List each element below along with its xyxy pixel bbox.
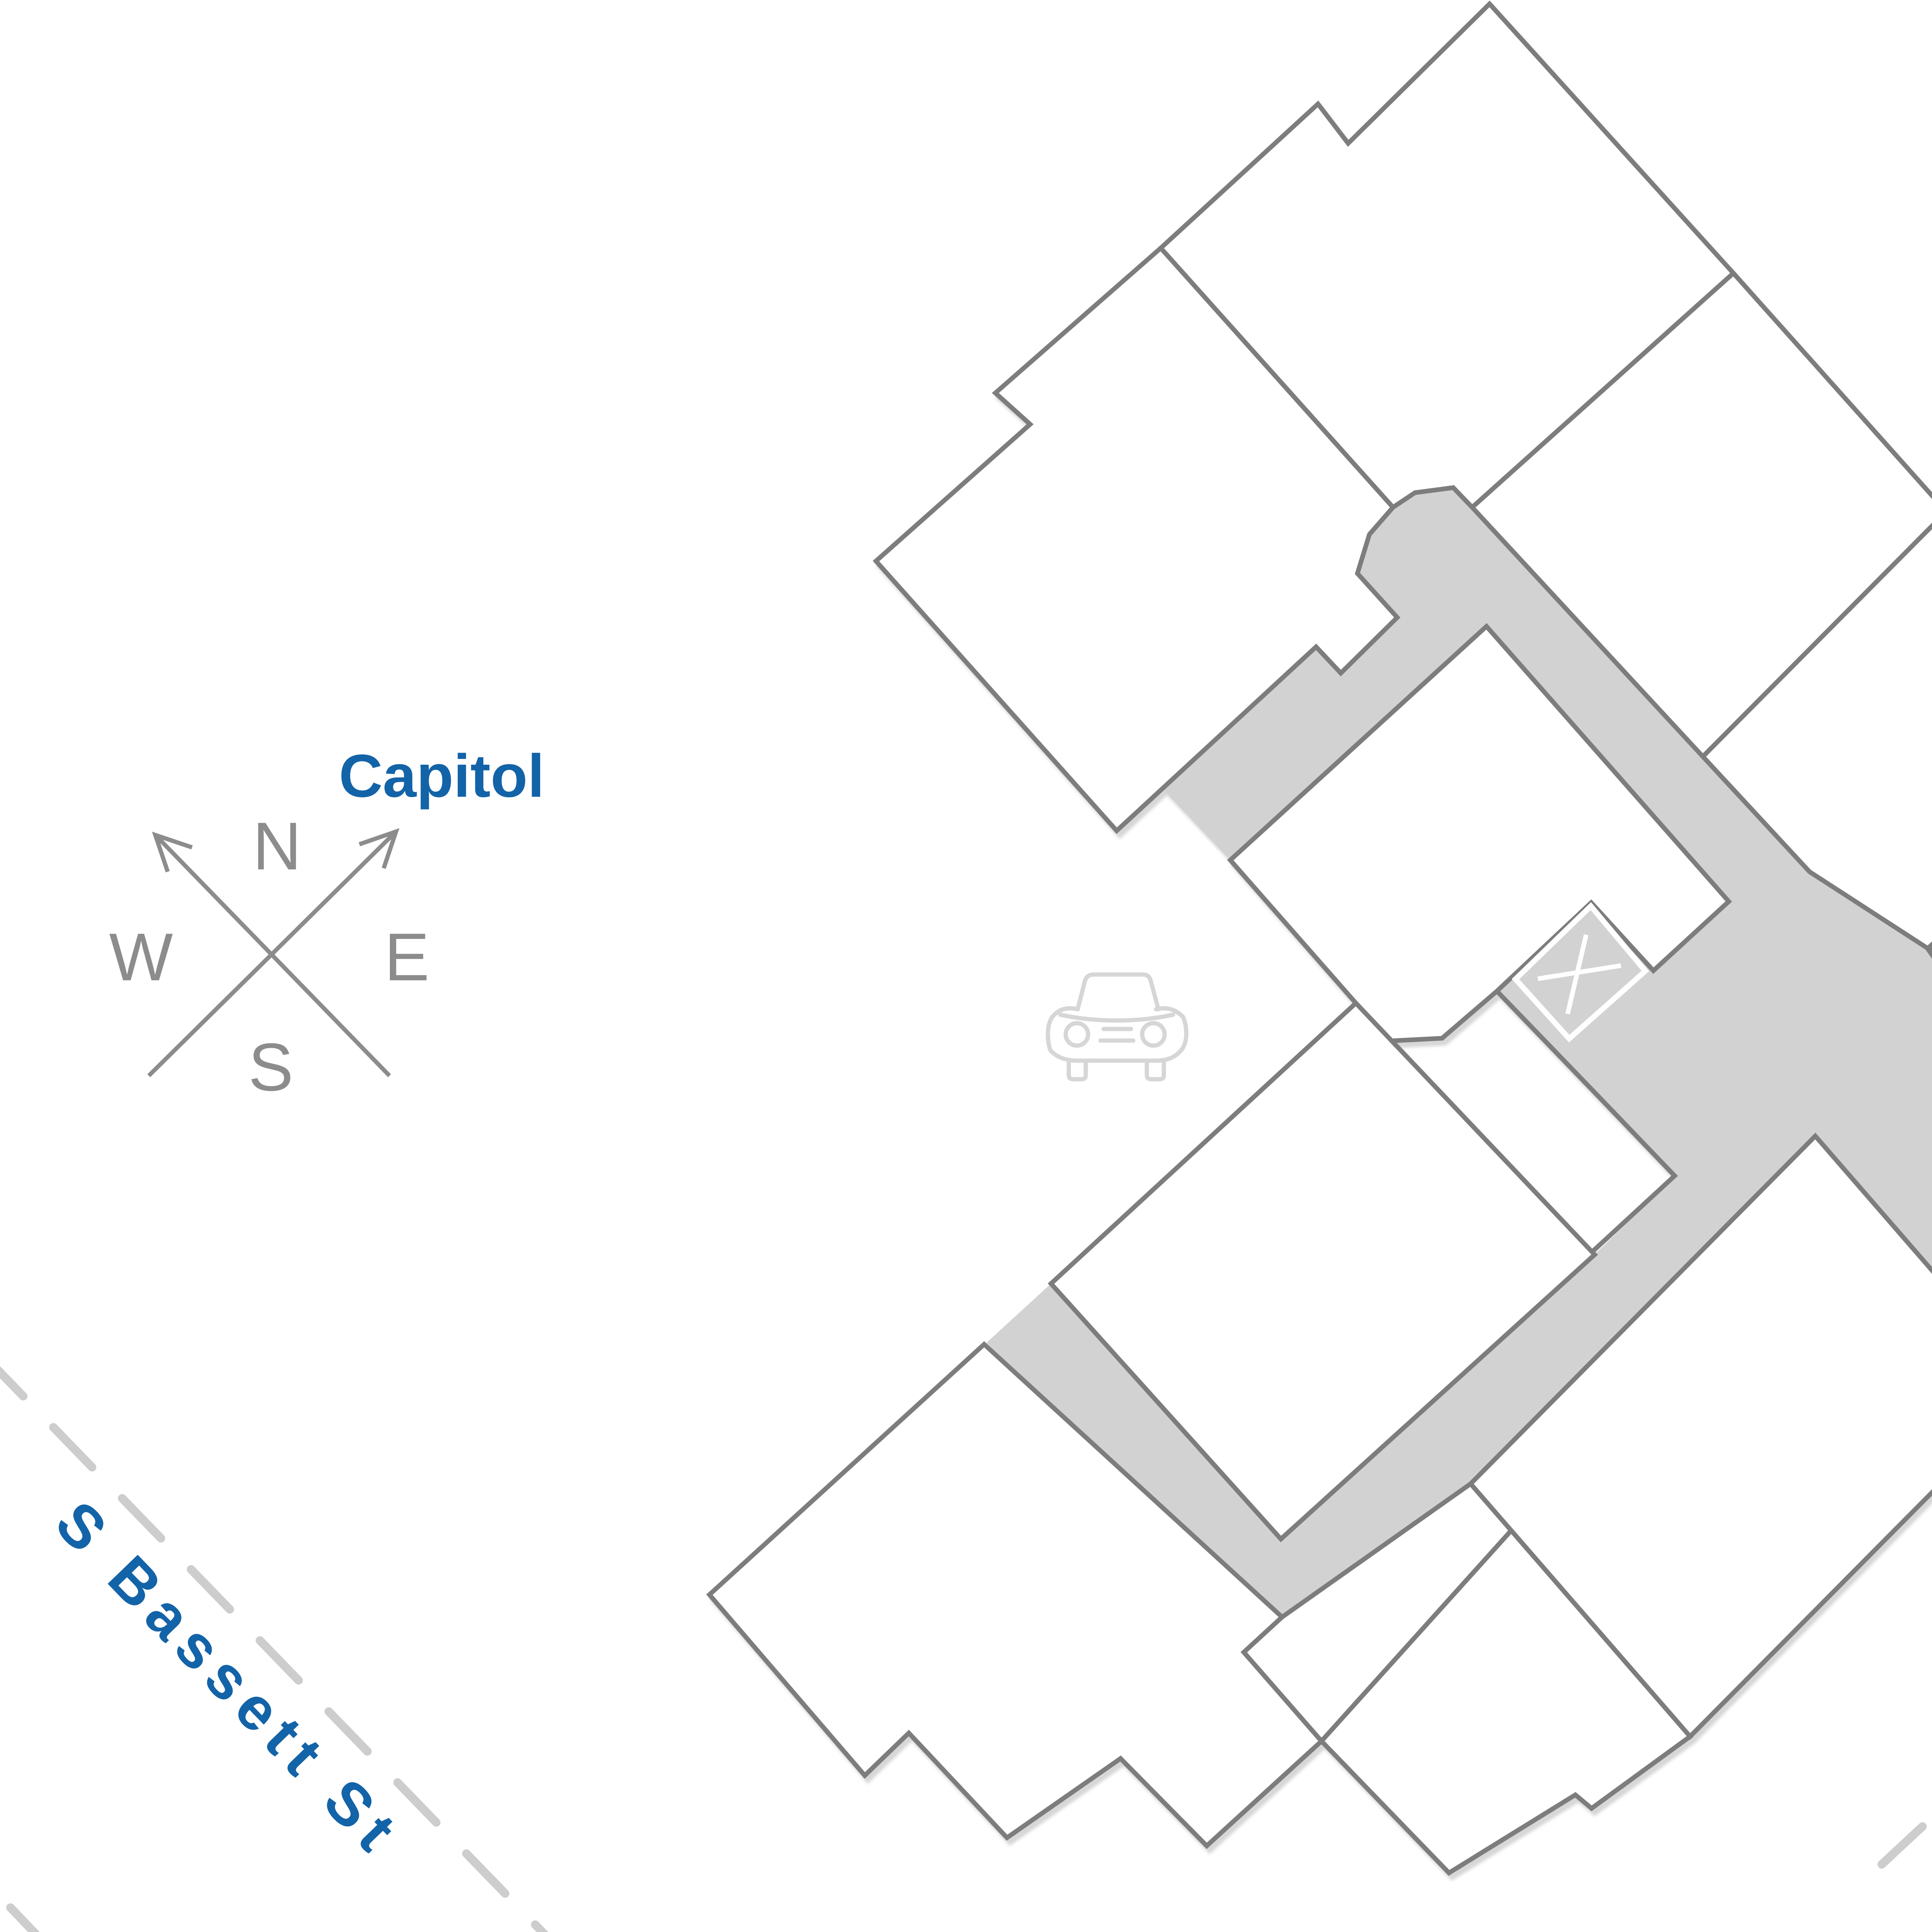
svg-text:E: E — [384, 920, 430, 995]
svg-text:W: W — [109, 920, 173, 995]
svg-text:N: N — [253, 809, 301, 884]
svg-text:Capitol: Capitol — [339, 742, 544, 810]
svg-text:S Bassett St: S Bassett St — [43, 1488, 415, 1870]
svg-text:S: S — [248, 1030, 294, 1105]
